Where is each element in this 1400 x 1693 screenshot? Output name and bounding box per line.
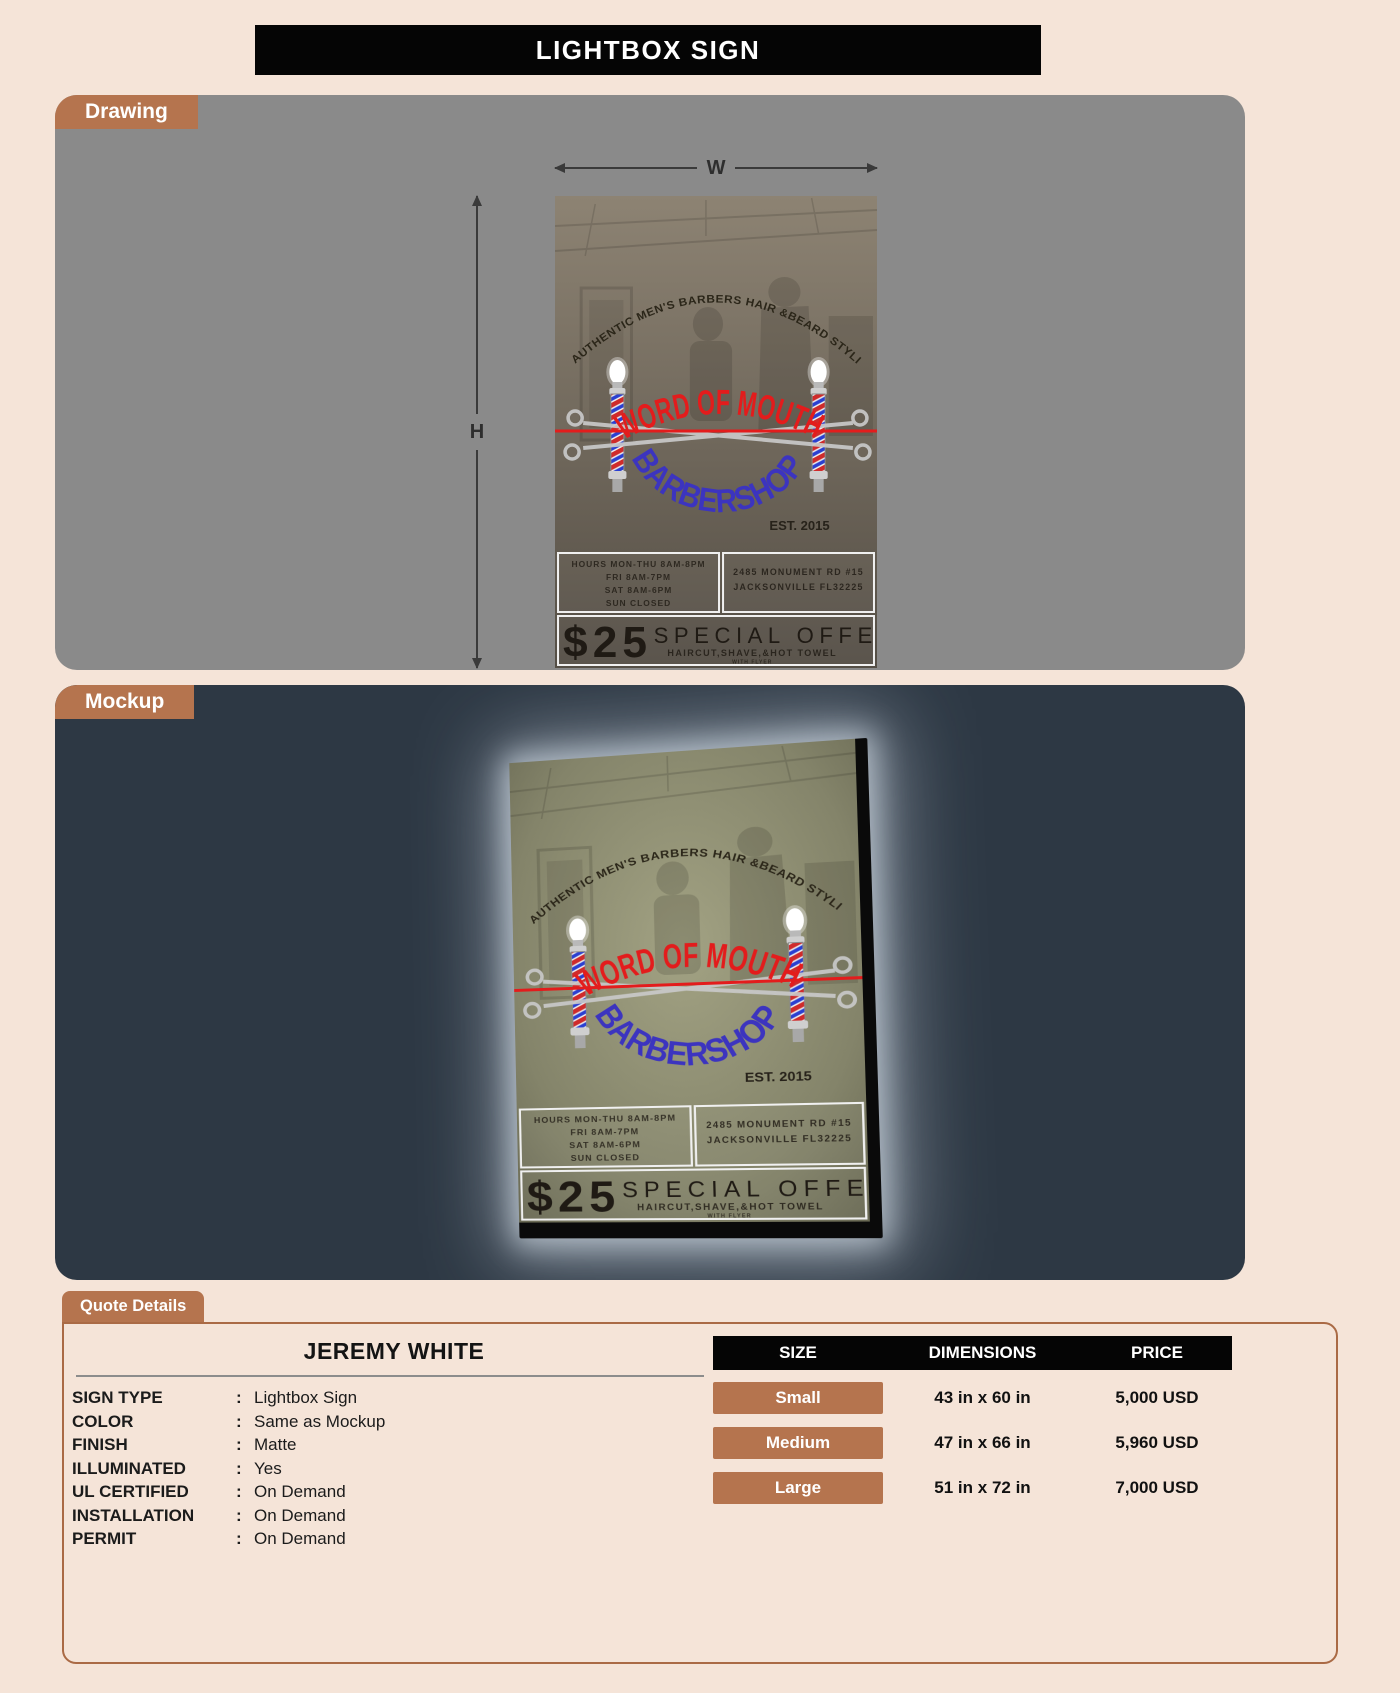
spec-label: PERMIT xyxy=(72,1527,236,1551)
spec-colon: : xyxy=(236,1410,254,1434)
height-dim-line-top xyxy=(476,196,478,414)
pricing-rows: Small 43 in x 60 in 5,000 USD Medium 47 … xyxy=(713,1382,1232,1504)
sign-established: EST. 2015 xyxy=(769,518,829,533)
dimensions-cell: 43 in x 60 in xyxy=(883,1388,1082,1408)
pricing-header-size: SIZE xyxy=(713,1343,883,1363)
spec-value: Matte xyxy=(254,1433,297,1457)
svg-text:SAT 8AM-6PM: SAT 8AM-6PM xyxy=(569,1139,641,1150)
spec-label: UL CERTIFIED xyxy=(72,1480,236,1504)
offer-price: $25 xyxy=(563,618,652,667)
size-badge-small: Small xyxy=(713,1382,883,1414)
drawing-panel: Drawing W H AUTHENTIC MEN'S BARBERS HAIR… xyxy=(55,95,1245,670)
pricing-header-price: PRICE xyxy=(1082,1343,1232,1363)
mockup-tab-label: Mockup xyxy=(85,690,164,714)
dimensions-cell: 51 in x 72 in xyxy=(883,1478,1082,1498)
mockup-panel: Mockup AUTHENTIC MEN'S BARBERS HAIR &BEA… xyxy=(55,685,1245,1280)
svg-text:JACKSONVILLE FL32225: JACKSONVILLE FL32225 xyxy=(707,1133,853,1145)
price-cell: 5,960 USD xyxy=(1082,1433,1232,1453)
customer-name: JEREMY WHITE xyxy=(74,1338,714,1365)
sign-established: EST. 2015 xyxy=(745,1068,813,1084)
spec-label: COLOR xyxy=(72,1410,236,1434)
price-cell: 5,000 USD xyxy=(1082,1388,1232,1408)
spec-value: On Demand xyxy=(254,1527,346,1551)
offer-subtitle: HAIRCUT,SHAVE,&HOT TOWEL xyxy=(667,648,837,658)
pricing-header-dimensions: DIMENSIONS xyxy=(883,1343,1082,1363)
height-dim-line-bottom xyxy=(476,450,478,668)
spec-label: FINISH xyxy=(72,1433,236,1457)
offer-title: SPECIAL OFFER xyxy=(622,1175,870,1202)
spec-row-installation: INSTALLATION : On Demand xyxy=(72,1504,712,1528)
offer-subtitle: HAIRCUT,SHAVE,&HOT TOWEL xyxy=(637,1201,824,1212)
svg-text:HOURS MON-THU 8AM-8PM: HOURS MON-THU 8AM-8PM xyxy=(571,559,705,569)
price-cell: 7,000 USD xyxy=(1082,1478,1232,1498)
drawing-tab: Drawing xyxy=(55,95,198,129)
spec-value: Same as Mockup xyxy=(254,1410,385,1434)
svg-text:FRI 8AM-7PM: FRI 8AM-7PM xyxy=(606,572,671,582)
spec-row-permit: PERMIT : On Demand xyxy=(72,1527,712,1551)
spec-colon: : xyxy=(236,1457,254,1481)
offer-title: SPECIAL OFFER xyxy=(654,623,877,648)
spec-colon: : xyxy=(236,1480,254,1504)
pricing-row-small: Small 43 in x 60 in 5,000 USD xyxy=(713,1382,1232,1414)
spec-colon: : xyxy=(236,1386,254,1410)
height-dimension: H xyxy=(467,196,487,668)
spec-row-color: COLOR : Same as Mockup xyxy=(72,1410,712,1434)
svg-text:JACKSONVILLE FL32225: JACKSONVILLE FL32225 xyxy=(733,582,863,592)
offer-note: WITH FLYER xyxy=(732,660,772,666)
drawing-sign: AUTHENTIC MEN'S BARBERS HAIR &BEARD STYL… xyxy=(555,196,877,668)
quote-details-tab: Quote Details xyxy=(62,1291,204,1322)
width-dim-line-left xyxy=(555,167,697,169)
barbershop-sign-art: AUTHENTIC MEN'S BARBERS HAIR &BEARD STYL… xyxy=(555,196,877,668)
svg-text:FRI 8AM-7PM: FRI 8AM-7PM xyxy=(570,1126,639,1137)
svg-text:SUN CLOSED: SUN CLOSED xyxy=(606,598,671,608)
quote-details-tab-label: Quote Details xyxy=(80,1297,186,1316)
pricing-table: SIZE DIMENSIONS PRICE Small 43 in x 60 i… xyxy=(713,1336,1232,1517)
spec-row-sign-type: SIGN TYPE : Lightbox Sign xyxy=(72,1386,712,1410)
width-dim-line-right xyxy=(735,167,877,169)
spec-row-finish: FINISH : Matte xyxy=(72,1433,712,1457)
spec-value: On Demand xyxy=(254,1504,346,1528)
spec-value: Lightbox Sign xyxy=(254,1386,357,1410)
mockup-sign: AUTHENTIC MEN'S BARBERS HAIR &BEARD STYL… xyxy=(509,739,870,1223)
spec-row-ul-certified: UL CERTIFIED : On Demand xyxy=(72,1480,712,1504)
offer-price: $25 xyxy=(526,1172,621,1222)
pricing-table-header: SIZE DIMENSIONS PRICE xyxy=(713,1336,1232,1370)
spec-value: On Demand xyxy=(254,1480,346,1504)
pricing-row-large: Large 51 in x 72 in 7,000 USD xyxy=(713,1472,1232,1504)
spec-label: ILLUMINATED xyxy=(72,1457,236,1481)
mockup-sign-3d: AUTHENTIC MEN'S BARBERS HAIR &BEARD STYL… xyxy=(509,738,883,1239)
height-dimension-label: H xyxy=(470,422,484,442)
offer-note: WITH FLYER xyxy=(707,1213,751,1219)
size-badge-medium: Medium xyxy=(713,1427,883,1459)
spec-colon: : xyxy=(236,1527,254,1551)
width-dimension-label: W xyxy=(707,158,726,178)
spec-label: INSTALLATION xyxy=(72,1504,236,1528)
pricing-row-medium: Medium 47 in x 66 in 5,960 USD xyxy=(713,1427,1232,1459)
mockup-tab: Mockup xyxy=(55,685,194,719)
width-dimension: W xyxy=(555,158,877,178)
svg-text:SAT 8AM-6PM: SAT 8AM-6PM xyxy=(605,585,673,595)
spec-colon: : xyxy=(236,1504,254,1528)
svg-text:SUN CLOSED: SUN CLOSED xyxy=(571,1152,641,1163)
spec-label: SIGN TYPE xyxy=(72,1386,236,1410)
page-title: LIGHTBOX SIGN xyxy=(536,35,761,66)
size-badge-large: Large xyxy=(713,1472,883,1504)
spec-list: SIGN TYPE : Lightbox Sign COLOR : Same a… xyxy=(72,1386,712,1551)
svg-text:2485 MONUMENT RD #15: 2485 MONUMENT RD #15 xyxy=(733,567,864,577)
drawing-tab-label: Drawing xyxy=(85,100,168,124)
spec-colon: : xyxy=(236,1433,254,1457)
dimensions-cell: 47 in x 66 in xyxy=(883,1433,1082,1453)
barbershop-sign-art: AUTHENTIC MEN'S BARBERS HAIR &BEARD STYL… xyxy=(509,739,870,1223)
spec-value: Yes xyxy=(254,1457,282,1481)
customer-name-divider xyxy=(76,1375,704,1377)
spec-row-illuminated: ILLUMINATED : Yes xyxy=(72,1457,712,1481)
quote-details-panel: JEREMY WHITE SIGN TYPE : Lightbox Sign C… xyxy=(62,1322,1338,1664)
page-title-bar: LIGHTBOX SIGN xyxy=(255,25,1041,75)
